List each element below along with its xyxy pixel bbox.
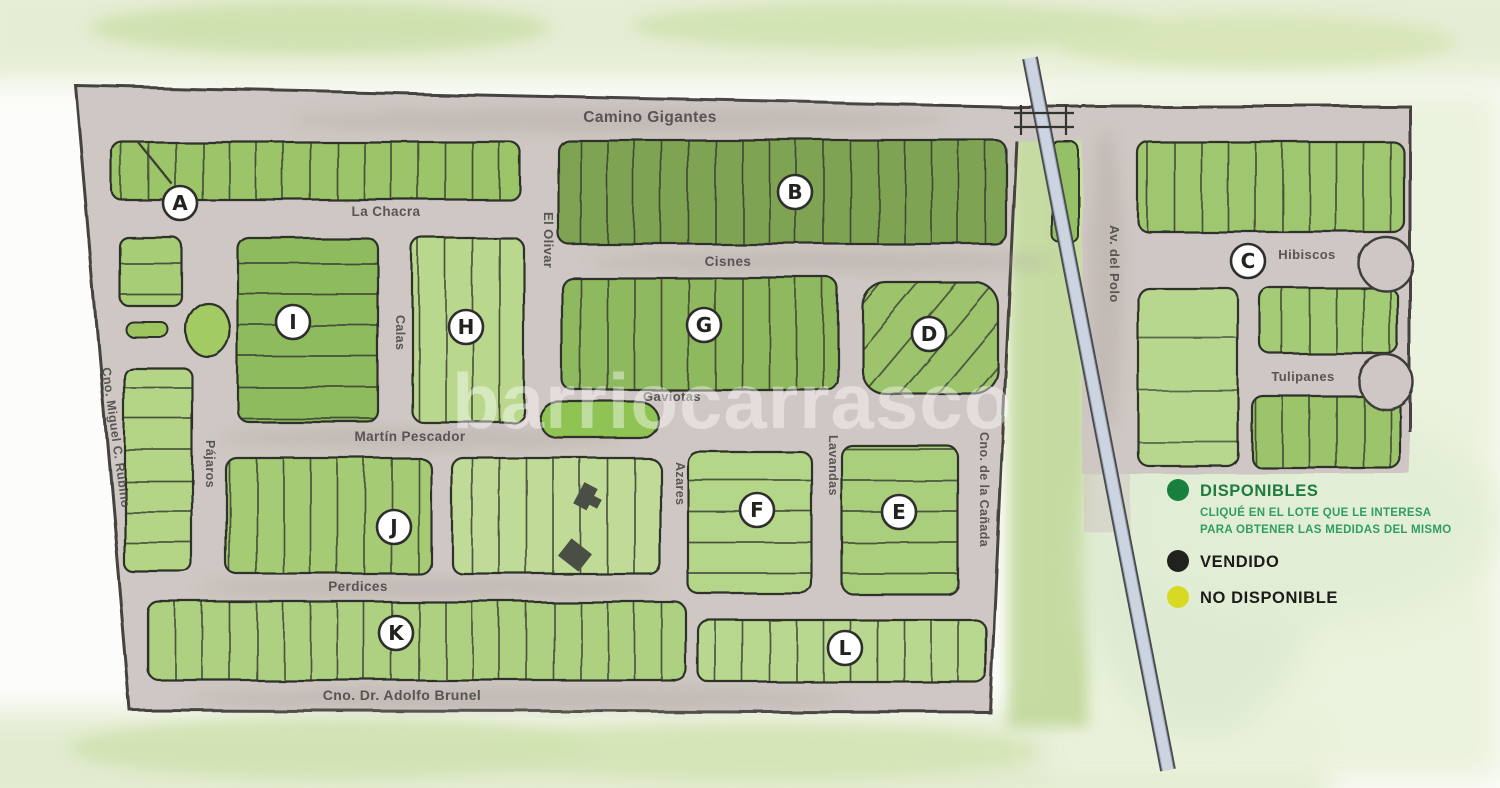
legend-available-note-2: PARA OBTENER LAS MEDIDAS DEL MISMO (1200, 524, 1452, 536)
lot-block-right-top[interactable] (1138, 142, 1404, 232)
legend-available-label: DISPONIBLES (1200, 482, 1318, 500)
street-label-el-olivar: El Olivar (541, 212, 556, 268)
street-label-cisnes: Cisnes (705, 254, 752, 269)
legend-unavailable-label: NO DISPONIBLE (1200, 589, 1338, 607)
roundabout-island (186, 303, 230, 357)
street-label-pajaros: Pájaros (203, 440, 217, 488)
section-letter-l: L (839, 636, 852, 660)
street-label-azares: Azares (673, 462, 687, 505)
section-letter-c: C (1241, 249, 1256, 273)
section-letter-a: A (172, 191, 188, 215)
legend-sold-label: VENDIDO (1200, 553, 1279, 571)
street-label-canada: Cno. de la Cañada (977, 432, 991, 548)
street-label-camino-gigantes: Camino Gigantes (583, 109, 716, 126)
lot-block-right-mid-west[interactable] (1138, 288, 1238, 466)
street-label-tulipanes: Tulipanes (1271, 369, 1334, 384)
street-label-hibiscos: Hibiscos (1278, 247, 1335, 262)
street-label-av-del-polo: Av. del Polo (1107, 225, 1122, 303)
section-letter-b: B (787, 180, 802, 204)
watermark: barriocarrasco (452, 357, 1012, 445)
cul-de-sac-tulipanes (1359, 355, 1413, 409)
street-label-perdices: Perdices (328, 579, 388, 594)
section-letter-h: H (458, 315, 475, 339)
legend-available-swatch (1167, 479, 1189, 501)
subdivision-map: Camino Gigantes La Chacra El Olivar Cisn… (0, 0, 1500, 788)
section-letter-d: D (921, 322, 938, 346)
street-label-calas: Calas (393, 315, 407, 350)
legend-unavailable-swatch (1167, 586, 1189, 608)
street-label-martin-pescador: Martín Pescador (354, 429, 465, 444)
section-letter-e: E (892, 500, 906, 524)
lot-block-section-k[interactable] (148, 602, 686, 680)
legend-available-note-1: CLIQUÉ EN EL LOTE QUE LE INTERESA (1200, 506, 1431, 519)
map-canvas: Camino Gigantes La Chacra El Olivar Cisn… (0, 0, 1500, 788)
section-letter-f: F (750, 498, 764, 522)
lot-block-west-edge-lower[interactable] (124, 368, 192, 572)
section-letter-g: G (696, 313, 712, 337)
street-label-la-chacra: La Chacra (352, 204, 421, 219)
lot-block-right-mid-east[interactable] (1260, 288, 1398, 354)
section-letter-i: I (289, 310, 296, 334)
cul-de-sac-hibiscos (1359, 237, 1413, 291)
lot-block-west-edge-upper[interactable] (120, 238, 182, 306)
section-letter-k: K (388, 621, 405, 645)
legend-sold-swatch (1167, 550, 1189, 572)
lot-block-section-j-east[interactable] (452, 458, 660, 574)
median-island-small (126, 322, 168, 337)
street-label-adolfo-brunel: Cno. Dr. Adolfo Brunel (323, 687, 481, 703)
section-letter-j: J (388, 515, 397, 539)
